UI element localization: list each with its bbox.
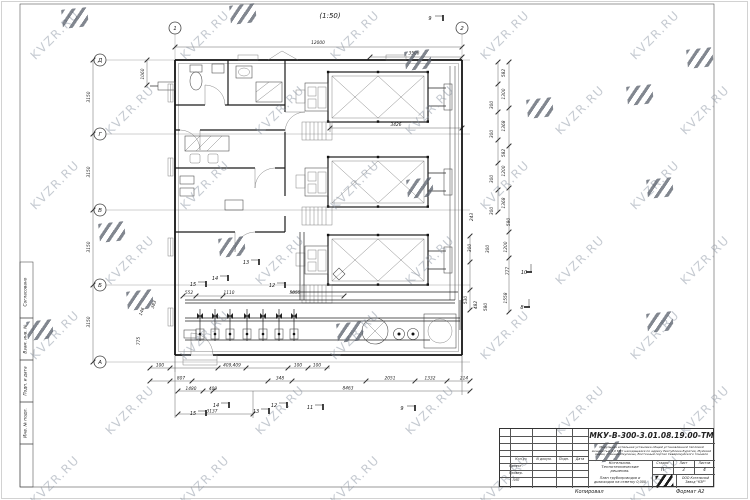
floor-plan-svg: Согласовано Взам. инв. № Подп. и дата Ин… xyxy=(0,0,750,500)
dim-label: 1110 xyxy=(224,290,235,296)
dim-label: 300 xyxy=(489,175,495,183)
format-label: Формат А2 xyxy=(676,489,704,495)
tb-col-header: N докум. xyxy=(532,456,556,463)
dim-label: 8463 xyxy=(343,386,354,392)
sheet-label: Лист xyxy=(673,460,694,467)
axis-grid: 1 2 Д Г В Б А xyxy=(94,22,470,372)
frame-left-label: Согласовано xyxy=(23,277,29,306)
dim-label: 1368 xyxy=(501,120,507,131)
project-description: Модульная котельная установка общей уста… xyxy=(588,444,715,460)
dim-label: 3426 xyxy=(391,122,402,128)
dim-label: 1300 xyxy=(501,88,507,99)
dim-label: 1060 xyxy=(140,68,146,79)
dim-label: 214 xyxy=(460,376,468,382)
frame-left-label: Подп. и дата xyxy=(23,366,29,396)
dim-label: 3150 xyxy=(86,241,92,252)
dim-label: 3150 xyxy=(86,166,92,177)
stage-value: П xyxy=(652,467,673,474)
dim-label: 3137 xyxy=(207,409,218,415)
drawing-sheet: KVZR.RUKVZR.RUKVZR.RUKVZR.RUKVZR.RUKVZR.… xyxy=(0,0,750,500)
dim-label: 3150 xyxy=(86,316,92,327)
frame-left-label: Взам. инв. № xyxy=(23,324,29,354)
grid-bubble-label: В xyxy=(98,208,102,214)
mark-label: 9 xyxy=(400,406,403,412)
dim-label: 482 xyxy=(473,301,479,309)
grid-bubble-label: Б xyxy=(98,283,102,289)
stage-label: Стадия xyxy=(652,460,673,467)
scale-note: (1:50) xyxy=(319,12,340,20)
dim-label: 100 xyxy=(156,363,164,369)
grid-bubble-label: А xyxy=(97,360,102,366)
dim-label: 409 xyxy=(209,386,217,392)
dim-label: 100 xyxy=(313,363,321,369)
dim-label: 807 xyxy=(177,376,185,382)
dim-label: 1558 xyxy=(503,292,509,303)
mark-label: 14 xyxy=(213,403,219,409)
kvzr-logo xyxy=(655,474,673,488)
tb-col-header: Дата xyxy=(572,456,588,463)
mark-label: 15 xyxy=(190,282,196,288)
dim-label: 582 xyxy=(501,149,507,157)
mark-label: 12 xyxy=(271,403,277,409)
grid-bubble-label: Д xyxy=(97,58,103,64)
company-name: ООО Котельный Завод "КЗР" xyxy=(676,474,715,488)
dim-label: 1368 xyxy=(501,197,507,208)
tb-row-label: Провер. xyxy=(500,470,532,477)
dim-label: 243 xyxy=(469,213,475,221)
tb-row-label: ГИП xyxy=(500,477,532,484)
mark-label: 11 xyxy=(307,405,313,411)
tb-row-label: Проект. xyxy=(500,463,532,470)
dim-label: 582 xyxy=(501,69,507,77)
copy-label: Копировал xyxy=(575,489,604,495)
dim-label: 348 xyxy=(276,376,284,382)
doc-number: МКУ-В-300-3.01.08.19.00-ТМ xyxy=(588,429,715,443)
dim-label: 300 xyxy=(489,101,495,109)
grid-bubble-label: 2 xyxy=(460,26,464,32)
dim-label: 409,409 xyxy=(223,363,241,369)
dim-label: 3150 xyxy=(86,91,92,102)
grid-bubble-label: 1 xyxy=(173,26,177,32)
mark-label: 10 xyxy=(521,270,527,276)
dim-label: 5055 xyxy=(290,290,301,296)
dim-label: 300 xyxy=(489,130,495,138)
dim-label: 3506 xyxy=(409,51,420,57)
dim-label: 300 xyxy=(467,244,473,252)
dim-label: 580 xyxy=(483,303,489,311)
dim-label: 530 xyxy=(463,296,469,304)
boiler-units xyxy=(296,66,455,303)
dim-label: 580 xyxy=(506,218,512,226)
sheet-name: План трубопроводов и дымоходов на отметк… xyxy=(588,474,652,488)
dim-label: 2051 xyxy=(385,376,396,382)
frame-left-label: Инв. № подл. xyxy=(23,408,29,438)
dim-label: 146 xyxy=(138,307,147,317)
dim-label: 300 xyxy=(489,207,495,215)
sheet-value: 3 xyxy=(673,467,694,474)
title-block: Кол.уч N докум. Подп. Дата Проект. Прове… xyxy=(499,428,714,487)
dim-label: 300 xyxy=(485,245,491,253)
dim-label: 775 xyxy=(136,337,142,345)
company-logo-cell xyxy=(652,474,676,488)
sheets-label: Листов xyxy=(694,460,715,467)
dim-label: 1200 xyxy=(503,241,509,252)
mark-label: 15 xyxy=(190,411,196,417)
dim-label: 100 xyxy=(294,363,302,369)
mark-label: 8 xyxy=(520,305,523,311)
dim-label: 12000 xyxy=(311,40,325,46)
dim-label: 1480 xyxy=(186,386,197,392)
mark-label: 9 xyxy=(428,16,431,22)
mark-label: 13 xyxy=(243,260,249,266)
dim-label: 1332 xyxy=(425,376,436,382)
dim-label: 552 xyxy=(185,290,193,296)
tb-col-header: Кол.уч xyxy=(510,456,532,463)
mark-label: 13 xyxy=(253,409,259,415)
dim-label: 1200 xyxy=(501,165,507,176)
tb-col-header: Подп. xyxy=(556,456,572,463)
mark-label: 12 xyxy=(269,283,275,289)
mark-label: 14 xyxy=(212,276,218,282)
dim-label: 777 xyxy=(505,267,511,275)
object-name: Котельная. Теплотехнические решения. xyxy=(588,460,652,474)
sheets-value: 4 xyxy=(694,467,715,474)
dim-label: 383 xyxy=(150,300,159,310)
